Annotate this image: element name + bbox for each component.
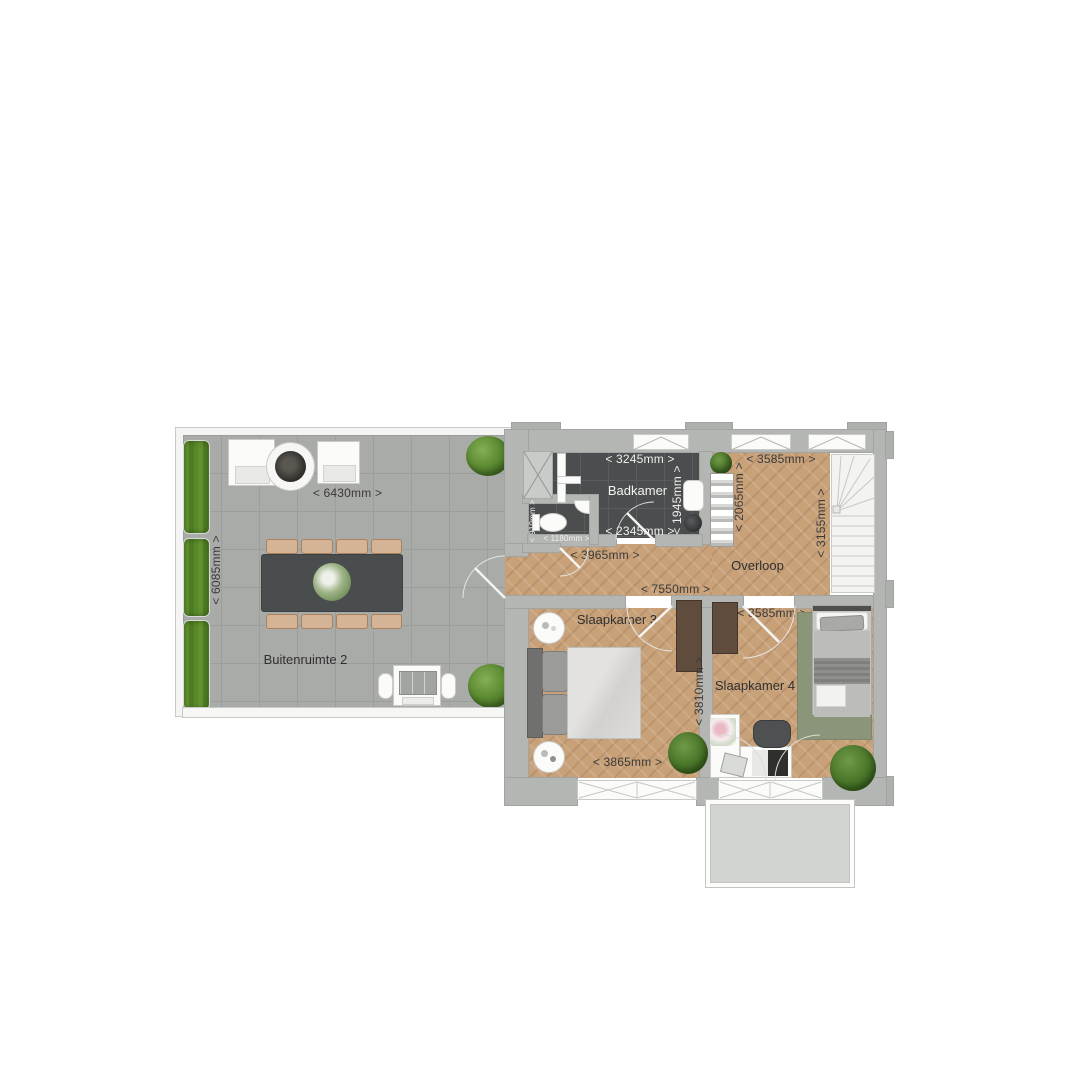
dim-hall-width: < 3965mm > (565, 548, 645, 562)
hedge-planter (184, 621, 209, 709)
dim-badkamer-bottom: < 2345mm > (595, 524, 685, 538)
fire-pit (267, 443, 314, 490)
dining-chair (301, 614, 333, 629)
dim-stairs-right: < 3155mm > (813, 473, 829, 573)
round-side-table (533, 612, 565, 644)
lounge-chair (317, 441, 360, 484)
double-bed-duvet (568, 648, 640, 738)
bed-towel (816, 685, 846, 707)
bbq-grill (393, 665, 441, 706)
bed-pillow (542, 694, 568, 735)
dining-chair (371, 614, 402, 629)
plant-icon (830, 745, 876, 791)
dim-overloop-top: < 3585mm > (746, 452, 816, 466)
wall-toilet-bottom (523, 544, 560, 552)
wardrobe (712, 602, 738, 654)
dining-chair (336, 614, 368, 629)
side-table-item (542, 622, 549, 629)
wall-pilaster (512, 423, 560, 430)
french-door (718, 780, 823, 800)
wall-bottom (505, 778, 577, 805)
dim-overloop-left: < 2065mm > (731, 447, 747, 547)
room-label-buitenruimte: Buitenruimte 2 (258, 652, 353, 667)
side-table-item (551, 626, 556, 631)
wall-right (874, 430, 886, 805)
terrace-railing-bottom (183, 708, 508, 717)
hedge-planter (184, 539, 209, 616)
bed-blanket (814, 658, 870, 684)
dim-slaapkamer3-right: < 3810mm > (691, 641, 707, 741)
dining-chair (266, 614, 298, 629)
fire-pit-bowl (275, 451, 306, 482)
lounge-chair-cushion (235, 466, 270, 484)
office-chair (753, 720, 791, 748)
window (808, 434, 866, 450)
floorplan-canvas: < 6430mm > < 6085mm > Buitenruimte 2 (0, 0, 1080, 1080)
dim-slaapkamer3-bottom: < 3865mm > (585, 755, 670, 769)
window (633, 434, 689, 450)
dining-chair (301, 539, 333, 554)
room-label-overloop: Overloop (725, 558, 790, 573)
bed-pillow (820, 615, 865, 632)
wall-pilaster (848, 423, 886, 430)
room-label-slaapkamer4: Slaapkamer 4 (716, 678, 794, 693)
stairs (832, 455, 874, 592)
balcony (706, 800, 854, 887)
table-centerpiece-plant (313, 563, 351, 601)
round-side-table (533, 741, 565, 773)
dim-landing-total: < 7550mm > (638, 582, 713, 596)
shower-arm (558, 477, 580, 483)
wall-pilaster (886, 777, 893, 805)
hedge-planter (184, 441, 209, 533)
dining-chair (336, 539, 368, 554)
laptop (752, 750, 788, 776)
side-table-item (550, 756, 556, 762)
double-bed-headboard (528, 649, 542, 737)
wall-pilaster (686, 423, 732, 430)
bed-headboard (813, 606, 871, 611)
wall-pilaster (886, 581, 893, 607)
dim-terrace-width: < 6430mm > (300, 486, 395, 500)
dim-toilet-width: < 1180mm > (544, 532, 589, 544)
shaft-skylight (524, 452, 552, 498)
single-bed (813, 606, 871, 714)
bbq-grate (399, 671, 437, 695)
dining-chair (371, 539, 402, 554)
toilet-bowl (539, 513, 567, 532)
lounge-chair-cushion (323, 465, 356, 482)
bush-icon (466, 436, 510, 476)
bbq-drawer (402, 697, 434, 705)
bed-pillow (542, 651, 568, 692)
wall-hall-bedrooms (505, 596, 625, 608)
dim-toilet-depth: < 910mm > (526, 501, 538, 541)
dining-chair (266, 539, 298, 554)
window-french-balcony (577, 780, 697, 800)
side-table-item (541, 750, 548, 757)
towel-shelf (711, 474, 733, 546)
wall-pilaster (886, 432, 893, 458)
bbq-side-table (441, 673, 456, 699)
washbasin (683, 480, 704, 511)
flower-vase (710, 718, 736, 746)
room-label-badkamer: Badkamer (600, 483, 675, 498)
dim-terrace-depth: < 6085mm > (208, 520, 224, 620)
plant-icon (710, 452, 732, 474)
room-label-slaapkamer3: Slaapkamer 3 (572, 612, 662, 627)
bbq-side-table (378, 673, 393, 699)
bathroom-stool (684, 514, 702, 532)
wall-left-lower (505, 596, 528, 805)
